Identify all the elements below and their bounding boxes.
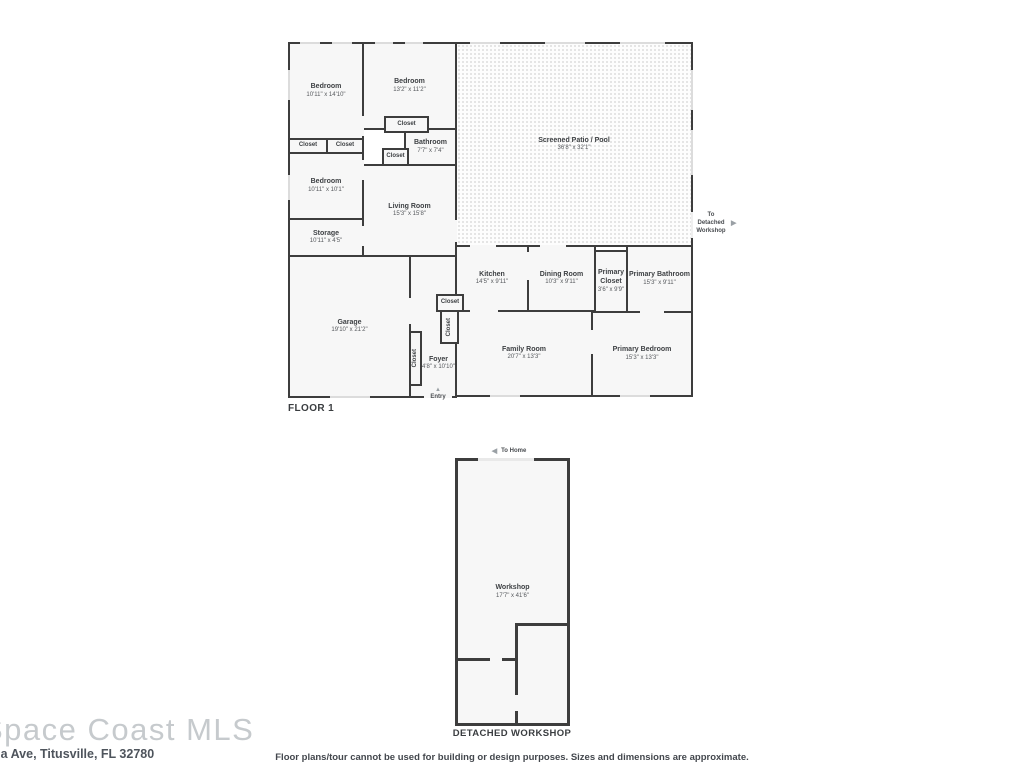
room-primary-closet: Primary Closet 3'6" x 9'9" (594, 250, 628, 313)
closet-label: Closet (446, 318, 454, 336)
room-primary-bedroom: Primary Bedroom 15'3" x 13'3" (591, 311, 693, 397)
arrow-right-icon: ▶ (731, 220, 736, 227)
room-dims: 15'3" x 13'3" (626, 355, 659, 362)
room-name: Storage (313, 230, 339, 239)
window (330, 396, 370, 398)
room-bedroom-top-left: Bedroom 10'11" x 14'10" (288, 42, 364, 140)
workshop-door-opening (478, 458, 534, 461)
closet-hall-vertical: Closet (440, 310, 459, 344)
closet-label: Closet (336, 142, 354, 150)
room-name: Workshop (495, 584, 529, 593)
room-screened-patio-pool: Screened Patio / Pool 36'8" x 32'1" (455, 42, 693, 247)
room-bedroom-left: Bedroom 10'11" x 10'1" (288, 152, 364, 220)
room-garage: Garage 19'10" x 21'2" (288, 255, 411, 398)
room-name: Bedroom (394, 78, 425, 87)
room-name: Primary Bedroom (613, 346, 672, 355)
to-home-marker: ◀ To Home (474, 447, 544, 455)
arrow-left-icon: ◀ (492, 448, 497, 455)
room-dims: 7'7" x 7'4" (417, 148, 443, 155)
room-dims: 10'11" x 10'1" (308, 187, 344, 194)
room-workshop: Workshop 17'7" x 41'6" (455, 458, 570, 726)
arrow-up-icon: ▲ (418, 387, 458, 393)
door-opening (362, 116, 364, 136)
room-name: Kitchen (479, 271, 505, 280)
door-opening (591, 330, 593, 354)
room-dims: 10'3" x 9'11" (545, 279, 577, 286)
closet-bathroom: Closet (382, 148, 409, 166)
room-dims: 15'3" x 15'8" (393, 211, 426, 218)
room-name: Bathroom (414, 139, 447, 148)
room-name: Living Room (388, 203, 430, 212)
window (332, 42, 352, 44)
window (545, 42, 585, 44)
to-workshop-label: To Detached Workshop (694, 211, 728, 235)
room-primary-bathroom: Primary Bathroom 15'3" x 9'11" (626, 245, 693, 313)
window (288, 70, 290, 100)
door-opening (470, 310, 498, 312)
room-living-room: Living Room 15'3" x 15'8" (362, 164, 457, 257)
door-opening (362, 226, 364, 246)
closet-label: Closet (441, 299, 459, 307)
door-opening (362, 160, 364, 180)
closet-left-a: Closet (288, 138, 328, 154)
window (490, 395, 520, 397)
room-dims: 14'5" x 9'11" (476, 279, 508, 286)
wall (502, 658, 518, 661)
room-dims: 15'3" x 9'11" (643, 280, 675, 287)
window (691, 70, 693, 110)
door-opening (409, 298, 411, 324)
closet-label: Closet (386, 153, 404, 161)
room-kitchen: Kitchen 14'5" x 9'11" (455, 245, 529, 312)
room-dims: 4'8" x 10'10" (422, 364, 455, 371)
wall (515, 623, 570, 626)
window (405, 42, 423, 44)
disclaimer-text: Floor plans/tour cannot be used for buil… (0, 752, 1024, 763)
window (620, 395, 650, 397)
room-name: Foyer (429, 356, 448, 365)
closet-left-b: Closet (326, 138, 364, 154)
room-name: Primary Closet (596, 269, 626, 287)
to-workshop-marker: To Detached Workshop ▶ (694, 211, 746, 235)
door-opening (540, 245, 566, 247)
room-dims: 3'6" x 9'9" (598, 287, 624, 294)
wall (457, 658, 490, 661)
door-opening (640, 311, 664, 313)
room-dining-room: Dining Room 10'3" x 9'11" (527, 245, 596, 312)
room-storage: Storage 10'11" x 4'5" (288, 218, 364, 257)
room-dims: 19'10" x 21'2" (331, 327, 367, 334)
room-name: Family Room (502, 346, 546, 355)
room-dims: 36'8" x 32'1" (558, 145, 591, 152)
door-opening (455, 220, 457, 242)
room-family-room: Family Room 20'7" x 13'3" (455, 310, 593, 397)
room-name: Bedroom (311, 83, 342, 92)
room-name: Dining Room (540, 271, 584, 280)
closet-bedroom-mid: Closet (384, 116, 429, 133)
workshop-title: DETACHED WORKSHOP (427, 728, 597, 739)
window (691, 130, 693, 175)
room-foyer: Foyer 4'8" x 10'10" (420, 341, 457, 386)
door-opening (527, 252, 529, 280)
floor1-title: FLOOR 1 (288, 403, 334, 414)
workshop-exit-opening (691, 212, 693, 238)
mls-logo: Space Coast MLS (0, 712, 254, 748)
room-name: Bedroom (311, 178, 342, 187)
window (300, 42, 320, 44)
room-name: Screened Patio / Pool (538, 137, 610, 146)
window (375, 42, 393, 44)
room-name: Primary Bathroom (629, 271, 690, 280)
door-opening (515, 695, 518, 711)
window (470, 42, 500, 44)
room-dims: 10'11" x 14'10" (306, 92, 345, 99)
room-name: Garage (337, 319, 361, 328)
closet-label: Closet (412, 349, 420, 367)
room-bathroom: Bathroom 7'7" x 7'4" (404, 128, 457, 166)
room-dims: 10'11" x 4'5" (310, 238, 342, 245)
window (620, 42, 665, 44)
room-dims: 13'2" x 11'2" (393, 87, 425, 94)
entry-label: Entry (430, 394, 445, 400)
room-dims: 17'7" x 41'6" (496, 593, 529, 600)
door-opening (470, 245, 496, 247)
to-home-label: To Home (501, 447, 526, 455)
closet-label: Closet (397, 121, 415, 129)
window (288, 175, 290, 200)
closet-label: Closet (299, 142, 317, 150)
room-dims: 20'7" x 13'3" (508, 354, 541, 361)
entry-marker: ▲ Entry (418, 387, 458, 401)
